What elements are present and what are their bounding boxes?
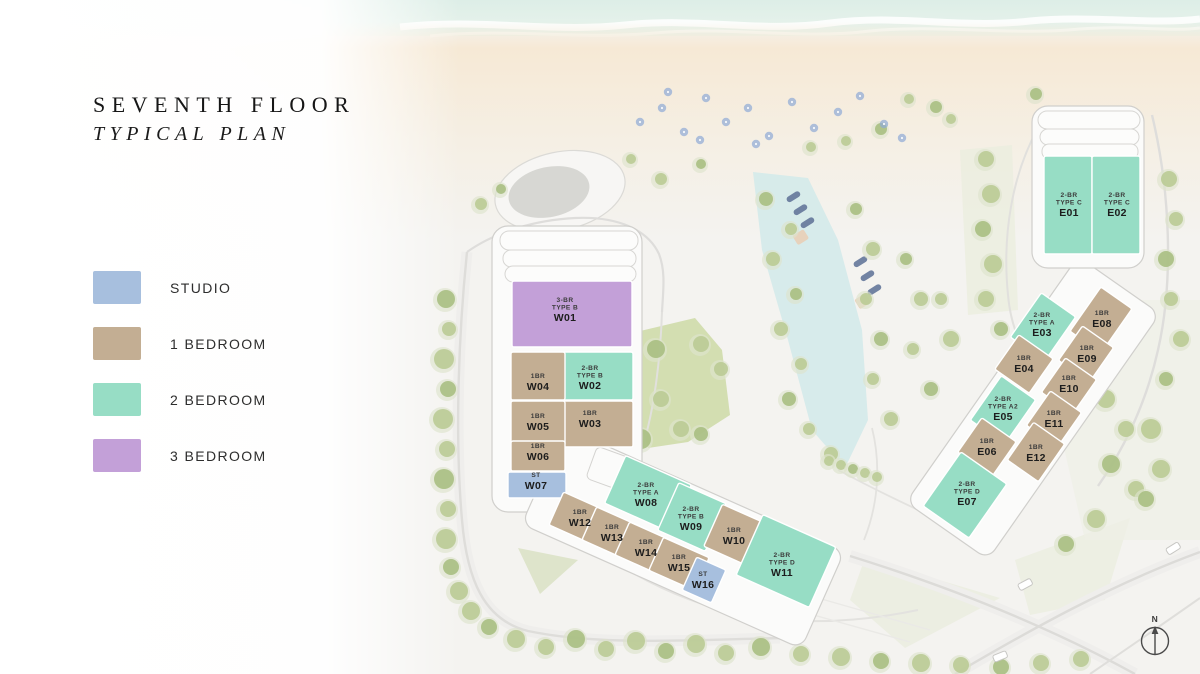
svg-text:W01: W01 bbox=[554, 312, 577, 324]
svg-text:E08: E08 bbox=[1092, 318, 1112, 330]
svg-text:1BR: 1BR bbox=[583, 410, 597, 417]
svg-text:ST: ST bbox=[531, 472, 540, 479]
legend-row-3br: 3 BEDROOM bbox=[93, 439, 267, 472]
legend-swatch-2br bbox=[93, 383, 141, 416]
north-label: N bbox=[1152, 614, 1159, 624]
svg-text:W03: W03 bbox=[579, 418, 602, 430]
unit-label-E09: 1BRE09 bbox=[1077, 345, 1097, 365]
svg-text:W05: W05 bbox=[527, 421, 550, 433]
svg-text:TYPE B: TYPE B bbox=[552, 305, 578, 312]
svg-text:W02: W02 bbox=[579, 380, 602, 392]
legend-label-2br: 2 BEDROOM bbox=[170, 392, 267, 408]
svg-text:1BR: 1BR bbox=[1080, 345, 1094, 352]
legend-row-2br: 2 BEDROOM bbox=[93, 383, 267, 416]
svg-text:W13: W13 bbox=[601, 532, 624, 544]
unit-label-E08: 1BRE08 bbox=[1092, 310, 1112, 330]
svg-text:W07: W07 bbox=[525, 480, 548, 492]
svg-text:TYPE B: TYPE B bbox=[577, 373, 603, 380]
svg-text:E04: E04 bbox=[1014, 363, 1034, 375]
legend-label-studio: STUDIO bbox=[170, 280, 231, 296]
svg-text:ST: ST bbox=[698, 571, 707, 578]
svg-text:1BR: 1BR bbox=[980, 438, 994, 445]
unit-label-E04: 1BRE04 bbox=[1014, 355, 1034, 375]
page-title: SEVENTH FLOOR bbox=[93, 92, 355, 118]
svg-text:TYPE A: TYPE A bbox=[633, 490, 659, 497]
svg-text:E05: E05 bbox=[993, 411, 1013, 423]
svg-text:1BR: 1BR bbox=[1095, 310, 1109, 317]
svg-text:2-BR: 2-BR bbox=[995, 396, 1012, 403]
svg-text:E06: E06 bbox=[977, 446, 997, 458]
svg-text:1BR: 1BR bbox=[1017, 355, 1031, 362]
unit-label-E11: 1BRE11 bbox=[1044, 410, 1063, 430]
svg-text:W10: W10 bbox=[723, 535, 746, 547]
svg-text:W04: W04 bbox=[527, 381, 550, 393]
svg-text:E10: E10 bbox=[1059, 383, 1079, 395]
svg-text:TYPE B: TYPE B bbox=[678, 514, 704, 521]
svg-text:W16: W16 bbox=[692, 579, 715, 591]
svg-text:E01: E01 bbox=[1059, 207, 1079, 219]
svg-text:W11: W11 bbox=[771, 567, 793, 579]
unit-label-E06: 1BRE06 bbox=[977, 438, 997, 458]
svg-text:2-BR: 2-BR bbox=[774, 552, 791, 559]
svg-text:2-BR: 2-BR bbox=[683, 506, 700, 513]
svg-text:TYPE A2: TYPE A2 bbox=[988, 404, 1018, 411]
svg-text:2-BR: 2-BR bbox=[1061, 192, 1078, 199]
svg-text:E02: E02 bbox=[1107, 207, 1127, 219]
svg-text:E03: E03 bbox=[1032, 327, 1052, 339]
svg-text:1BR: 1BR bbox=[1029, 444, 1043, 451]
svg-text:W08: W08 bbox=[635, 497, 658, 509]
west-tower-roof bbox=[500, 231, 638, 282]
svg-text:TYPE C: TYPE C bbox=[1056, 200, 1082, 207]
svg-text:W14: W14 bbox=[635, 547, 658, 559]
svg-text:W15: W15 bbox=[668, 562, 691, 574]
svg-text:TYPE A: TYPE A bbox=[1029, 320, 1055, 327]
svg-text:TYPE C: TYPE C bbox=[1104, 200, 1130, 207]
svg-text:1BR: 1BR bbox=[1062, 375, 1076, 382]
unit-label-E10: 1BRE10 bbox=[1059, 375, 1079, 395]
svg-text:1BR: 1BR bbox=[531, 373, 545, 380]
legend-label-1br: 1 BEDROOM bbox=[170, 336, 267, 352]
svg-text:TYPE D: TYPE D bbox=[769, 560, 795, 567]
svg-text:TYPE D: TYPE D bbox=[954, 489, 980, 496]
svg-text:W09: W09 bbox=[680, 521, 703, 533]
title-block: SEVENTH FLOOR TYPICAL PLAN bbox=[93, 92, 355, 146]
unit-label-E12: 1BRE12 bbox=[1026, 444, 1046, 464]
svg-text:2-BR: 2-BR bbox=[638, 482, 655, 489]
svg-text:W06: W06 bbox=[527, 451, 550, 463]
svg-text:1BR: 1BR bbox=[605, 524, 619, 531]
svg-text:1BR: 1BR bbox=[531, 443, 545, 450]
east-tower-roof bbox=[1038, 111, 1140, 159]
floor-plan-page: 3-BRTYPE BW012-BRTYPE BW021BRW031BRW041B… bbox=[0, 0, 1200, 674]
svg-text:E07: E07 bbox=[957, 496, 977, 508]
svg-text:E09: E09 bbox=[1077, 353, 1097, 365]
legend-label-3br: 3 BEDROOM bbox=[170, 448, 267, 464]
legend-row-1br: 1 BEDROOM bbox=[93, 327, 267, 360]
svg-text:1BR: 1BR bbox=[1047, 410, 1061, 417]
svg-text:2-BR: 2-BR bbox=[959, 481, 976, 488]
legend: STUDIO 1 BEDROOM 2 BEDROOM 3 BEDROOM bbox=[93, 271, 267, 495]
legend-row-studio: STUDIO bbox=[93, 271, 267, 304]
svg-text:1BR: 1BR bbox=[727, 527, 741, 534]
legend-swatch-studio bbox=[93, 271, 141, 304]
svg-text:1BR: 1BR bbox=[639, 539, 653, 546]
svg-text:W12: W12 bbox=[569, 517, 592, 529]
svg-text:2-BR: 2-BR bbox=[1109, 192, 1126, 199]
page-subtitle: TYPICAL PLAN bbox=[93, 123, 355, 146]
svg-text:E12: E12 bbox=[1026, 452, 1046, 464]
svg-text:1BR: 1BR bbox=[531, 413, 545, 420]
svg-text:2-BR: 2-BR bbox=[582, 365, 599, 372]
svg-text:1BR: 1BR bbox=[573, 509, 587, 516]
legend-swatch-3br bbox=[93, 439, 141, 472]
svg-text:3-BR: 3-BR bbox=[557, 297, 574, 304]
svg-text:1BR: 1BR bbox=[672, 554, 686, 561]
legend-swatch-1br bbox=[93, 327, 141, 360]
svg-text:2-BR: 2-BR bbox=[1034, 312, 1051, 319]
svg-text:E11: E11 bbox=[1044, 418, 1063, 430]
